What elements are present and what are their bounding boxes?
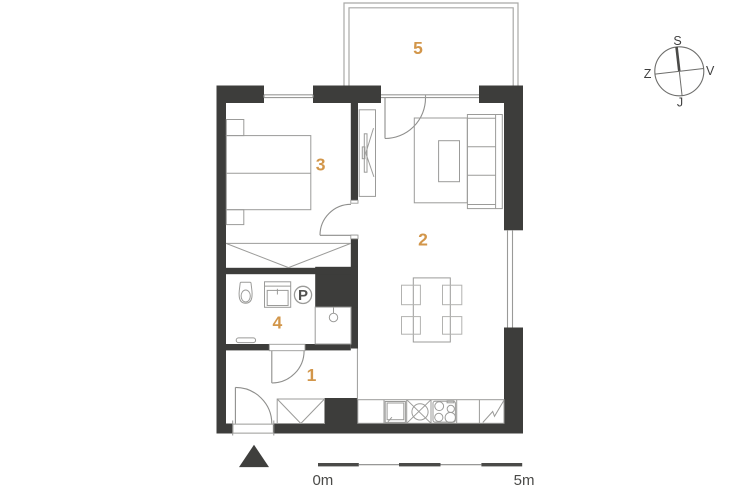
svg-text:V: V [706,64,715,78]
svg-text:S: S [673,34,681,48]
svg-text:J: J [677,95,683,109]
svg-text:P: P [298,287,308,304]
svg-text:0m: 0m [312,472,333,489]
svg-text:3: 3 [316,155,326,175]
svg-text:5: 5 [413,38,423,58]
svg-text:4: 4 [273,313,283,333]
svg-text:2: 2 [418,229,428,249]
svg-text:5m: 5m [514,472,535,489]
svg-text:1: 1 [307,365,317,385]
svg-text:Z: Z [644,67,652,81]
